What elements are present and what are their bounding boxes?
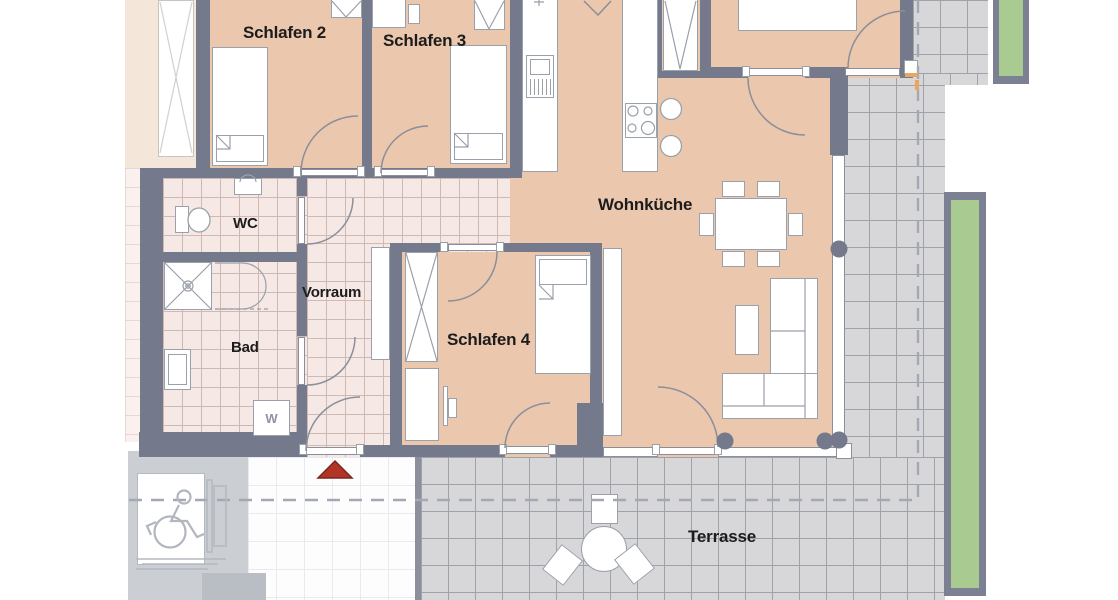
- door-jamb: [652, 444, 660, 455]
- room-label-schlafen2: Schlafen 2: [243, 23, 326, 43]
- window-wall-east: [832, 155, 845, 445]
- dining-chair: [699, 213, 714, 236]
- washbasin-bad-inner: [168, 354, 187, 385]
- door-leaf: [298, 197, 305, 244]
- door-jamb: [440, 242, 448, 252]
- door-leaf: [506, 446, 550, 454]
- wall: [297, 178, 307, 196]
- terrace-tiles-south: [421, 457, 945, 600]
- bed-schlafen3-blanket: [454, 133, 503, 160]
- desk-schlafen4: [405, 368, 439, 441]
- cooktop-icon: [625, 103, 657, 138]
- dining-chair: [788, 213, 803, 236]
- floor-plan: W: [0, 0, 1118, 600]
- door-jamb: [293, 166, 301, 177]
- toilet-tank: [175, 206, 189, 233]
- wardrobe-schlafen4: [405, 252, 438, 362]
- hall-corridor-floor: [307, 178, 510, 243]
- door-leaf: [845, 68, 900, 76]
- door-jamb: [548, 444, 556, 455]
- wardrobe-schlafen2: [331, 0, 362, 18]
- wall: [590, 243, 602, 405]
- chair-schlafen3: [408, 4, 420, 24]
- door-leaf: [748, 68, 805, 76]
- door-jamb: [374, 166, 382, 177]
- washer-label: W: [265, 411, 277, 426]
- sideboard-living: [603, 248, 622, 436]
- wall: [510, 0, 522, 178]
- wall: [362, 0, 372, 168]
- door-jamb: [299, 444, 307, 455]
- room-label-terrasse: Terrasse: [688, 527, 756, 547]
- door-jamb: [499, 444, 507, 455]
- elevator-car: [137, 473, 205, 565]
- neighbor-tile-strip: [125, 168, 140, 442]
- window-corner-se: [836, 443, 852, 459]
- kitchen-island: [622, 0, 658, 172]
- door-leaf: [298, 337, 305, 385]
- shower-tray: [164, 262, 212, 310]
- bed-schlafen4-pillow: [539, 259, 587, 285]
- entrance-door-leaf: [306, 447, 360, 455]
- desk-schlafen3: [372, 0, 406, 28]
- wall: [656, 71, 711, 78]
- neighbor-wardrobe: [158, 0, 194, 157]
- door-jamb: [496, 242, 504, 252]
- wall: [196, 0, 210, 178]
- dining-chair: [722, 181, 745, 197]
- room-label-schlafen4: Schlafen 4: [447, 330, 530, 350]
- oven-vent-lines: [530, 79, 551, 95]
- sofa-horizontal: [722, 373, 818, 419]
- door-jamb: [714, 444, 722, 455]
- room-label-schlafen3: Schlafen 3: [383, 31, 466, 51]
- planter-top-green: [999, 0, 1023, 76]
- wall: [140, 178, 163, 440]
- wall: [402, 445, 505, 457]
- terrace-chair: [591, 494, 618, 524]
- wardrobe-schlafen3: [474, 0, 505, 30]
- door-leaf: [301, 169, 358, 176]
- dining-table: [715, 198, 787, 250]
- window-wall-south-2: [718, 447, 838, 457]
- terrace-tiles-east: [842, 85, 945, 457]
- wc-sink: [234, 178, 262, 195]
- room-label-bad: Bad: [231, 339, 259, 356]
- door-leaf: [658, 447, 718, 455]
- wall: [830, 67, 848, 155]
- door-jamb: [742, 66, 750, 77]
- coffee-table: [735, 305, 759, 355]
- dining-chair: [722, 251, 745, 267]
- fridge-door: [530, 59, 550, 75]
- corridor-terrace-divider: [415, 457, 421, 600]
- washing-machine: W: [253, 400, 290, 436]
- window-corner-ne: [904, 60, 918, 74]
- wall: [390, 243, 402, 457]
- door-leaf: [448, 244, 497, 251]
- closet-vorraum: [371, 247, 390, 360]
- wall: [577, 403, 603, 457]
- door-jamb: [802, 66, 810, 77]
- dining-chair: [757, 181, 780, 197]
- room-label-wc: WC: [233, 215, 258, 232]
- chair-schlafen4-seat: [448, 398, 457, 418]
- room-label-vorraum: Vorraum: [302, 284, 361, 301]
- door-leaf: [381, 169, 428, 176]
- wall: [360, 445, 390, 457]
- bed-schlafen1: [738, 0, 857, 31]
- corridor-tiles: [248, 457, 415, 600]
- wall: [163, 252, 297, 262]
- planter-right-green: [951, 200, 979, 588]
- door-jamb: [427, 166, 435, 177]
- dining-chair: [757, 251, 780, 267]
- door-jamb: [356, 444, 364, 455]
- wall: [497, 243, 590, 252]
- wall: [700, 0, 711, 78]
- elevator-shaft-block: [202, 573, 266, 600]
- bed-schlafen2-blanket: [216, 135, 264, 162]
- room-label-wohnkueche: Wohnküche: [598, 195, 692, 215]
- window-wall-south-1: [603, 447, 658, 457]
- wardrobe-schlafen1: [663, 0, 698, 71]
- door-jamb: [357, 166, 365, 177]
